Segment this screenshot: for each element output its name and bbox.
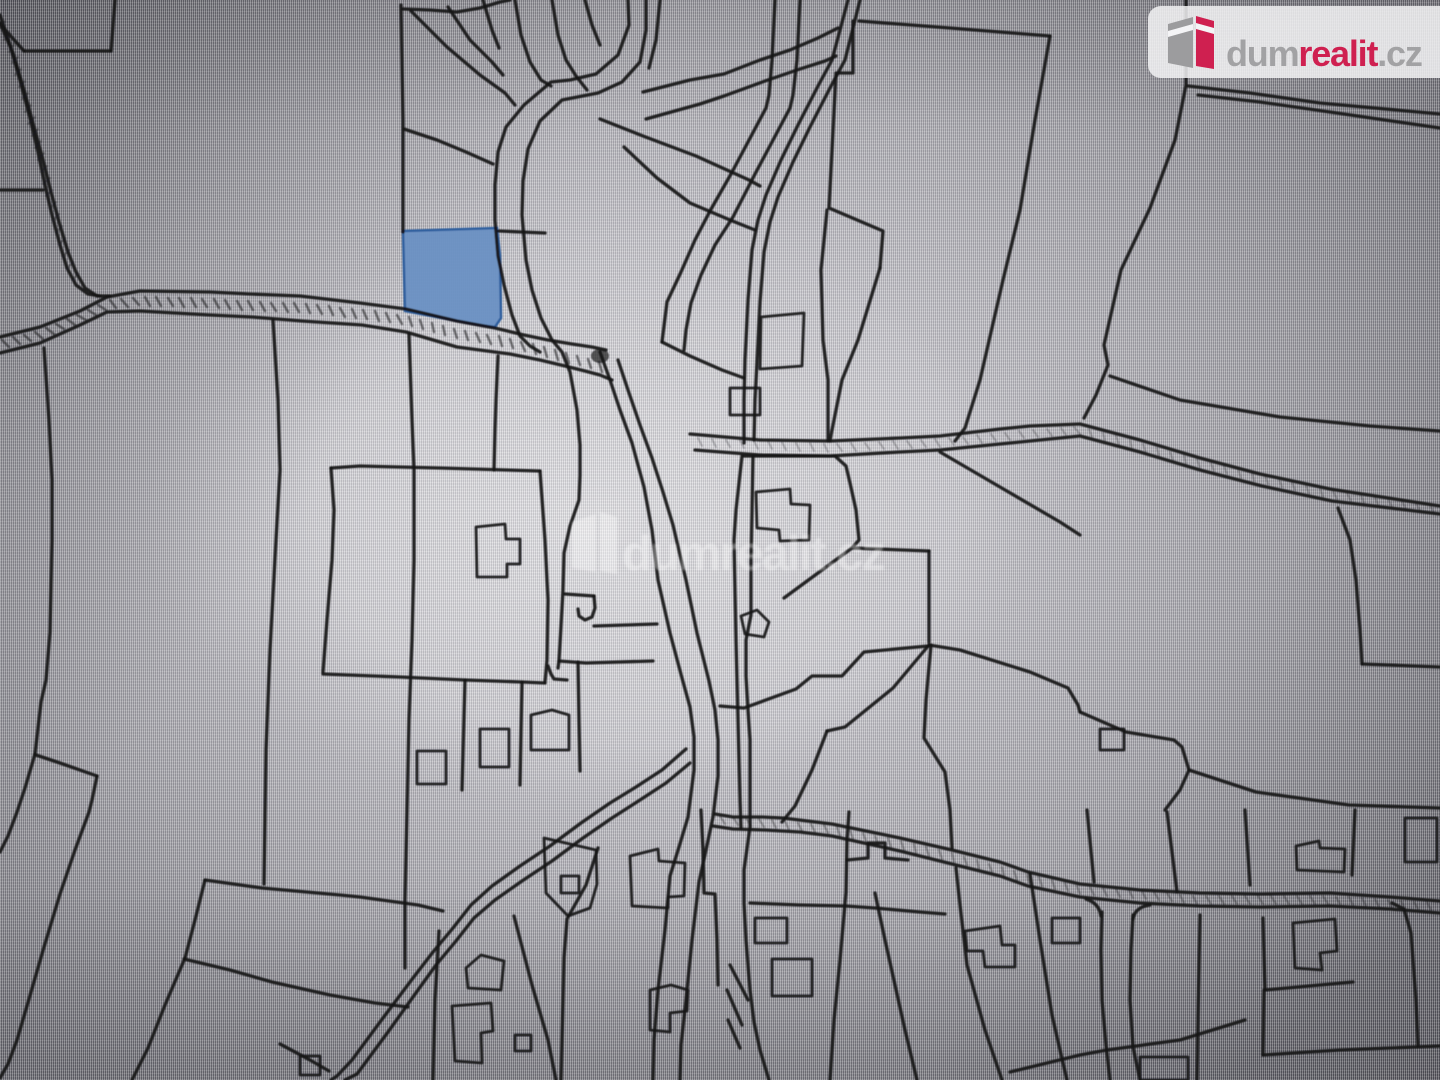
svg-text:dumrealit.cz: dumrealit.cz bbox=[622, 527, 884, 581]
svg-text:dumrealit.cz: dumrealit.cz bbox=[1226, 33, 1422, 74]
